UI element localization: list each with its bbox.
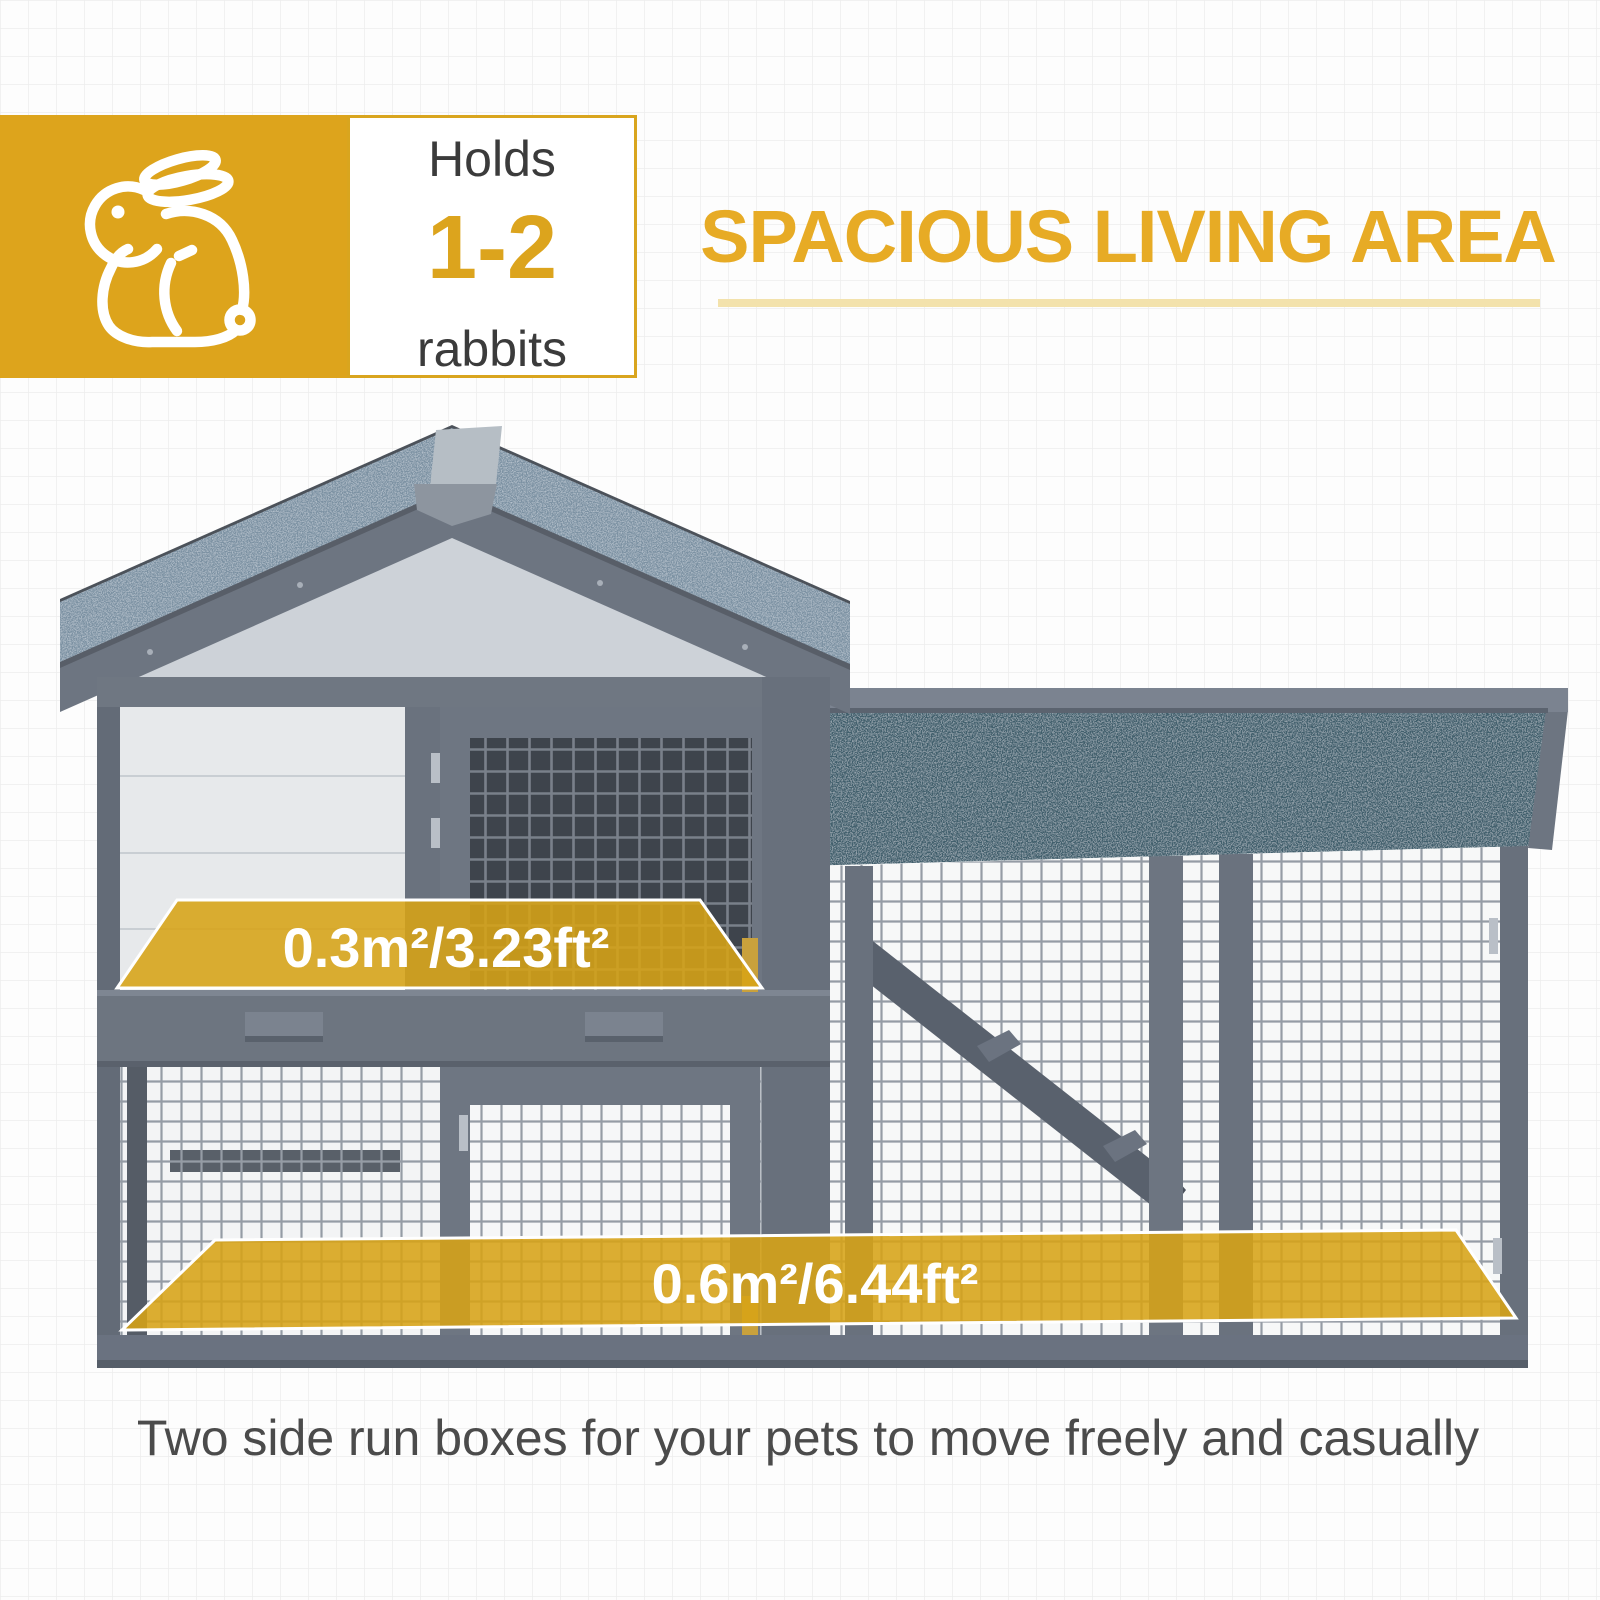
svg-text:Holds: Holds: [428, 131, 556, 187]
svg-text:0.6m²/6.44ft²: 0.6m²/6.44ft²: [652, 1252, 979, 1315]
svg-text:1-2: 1-2: [427, 198, 557, 298]
svg-text:Two side run boxes for your pe: Two side run boxes for your pets to move…: [137, 1410, 1479, 1466]
svg-text:rabbits: rabbits: [417, 321, 567, 377]
svg-text:SPACIOUS LIVING AREA: SPACIOUS LIVING AREA: [700, 195, 1556, 278]
svg-text:0.3m²/3.23ft²: 0.3m²/3.23ft²: [283, 916, 610, 979]
